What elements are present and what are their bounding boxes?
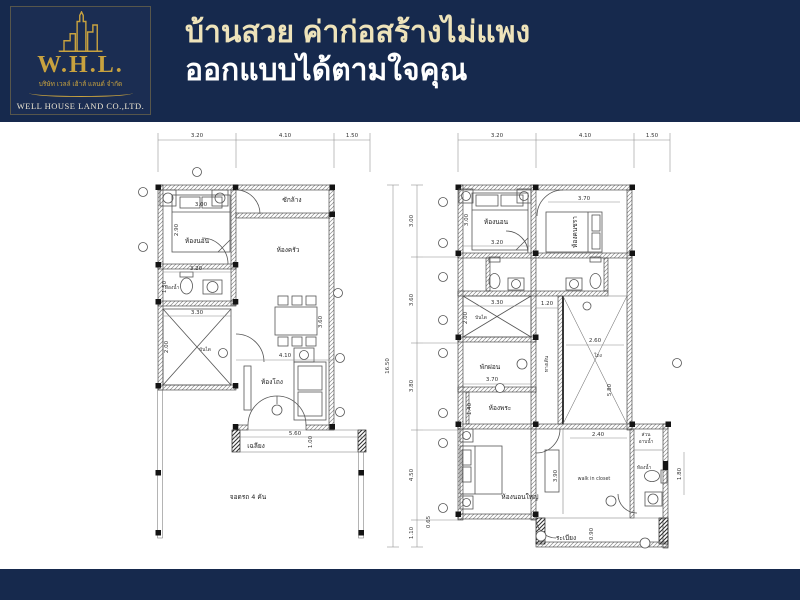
floor-plans-canvas: 3.20 4.10 1.50 bbox=[0, 122, 800, 569]
header-band: W.H.L. บริษัท เวลล์ เฮ้าส์ แลนด์ จำกัด W… bbox=[0, 0, 800, 122]
room-label-prayer: ห้องพระ bbox=[489, 404, 512, 412]
p2-dim: 3.80 bbox=[409, 379, 415, 392]
p2-dim: 2.40 bbox=[592, 432, 605, 438]
slide-headline: บ้านสวย ค่าก่อสร้างไม่แพง ออกแบบได้ตามใจ… bbox=[185, 14, 530, 90]
room-label-shower: อาบน้ำ bbox=[639, 437, 654, 445]
p2-dim: 2.00 bbox=[463, 311, 469, 324]
p2-dim: 1.20 bbox=[541, 301, 554, 307]
headline-line1: บ้านสวย ค่าก่อสร้างไม่แพง bbox=[185, 14, 530, 52]
p1-dim: 2.00 bbox=[164, 340, 170, 353]
room-label-hall: ห้องโถง bbox=[261, 378, 283, 386]
logo-company-name: WELL HOUSE LAND CO.,LTD. bbox=[17, 101, 145, 111]
room-label-bath2: ห้องน้ำ bbox=[637, 463, 652, 471]
p2-dim: 1.10 bbox=[409, 526, 415, 539]
room-label-elder-bedroom: ห้องคนชรา bbox=[571, 216, 579, 248]
p2-dim: 3.20 bbox=[491, 133, 504, 139]
p2-dim: 3.00 bbox=[409, 214, 415, 227]
p2-dim: 3.90 bbox=[553, 469, 559, 482]
p1-dim: 2.90 bbox=[174, 223, 180, 236]
room-label-relax: พักผ่อน bbox=[480, 363, 501, 371]
p1-dim: 1.50 bbox=[346, 133, 359, 139]
p2-top-dimension-line bbox=[458, 133, 670, 172]
p1-dim: 4.10 bbox=[279, 353, 292, 359]
room-label-master-bedroom: ห้องนอนใหญ่ bbox=[501, 493, 539, 501]
p2-dim: 4.10 bbox=[579, 133, 592, 139]
p2-dim: 0.65 bbox=[426, 515, 432, 528]
p1-dim: 4.10 bbox=[279, 133, 292, 139]
headline-line2: ออกแบบได้ตามใจคุณ bbox=[185, 52, 530, 90]
building-skyline-icon bbox=[57, 11, 104, 53]
p1-top-dimension-line bbox=[158, 133, 370, 172]
p2-dim: 1.50 bbox=[646, 133, 659, 139]
room-label-stairs2: บันได bbox=[475, 314, 487, 321]
second-floor-plan: 3.20 4.10 1.50 3.00 3.60 3.80 4.50 1.10 … bbox=[385, 133, 684, 548]
p2-dim: 3.00 bbox=[464, 213, 470, 226]
room-label-balcony: ระเบียง bbox=[556, 534, 576, 542]
room-label-carport: จอดรถ 4 คัน bbox=[230, 493, 267, 501]
p1-dim: 3.00 bbox=[195, 202, 208, 208]
logo-abbr: W.H.L. bbox=[37, 53, 123, 78]
logo-thai-name: บริษัท เวลล์ เฮ้าส์ แลนด์ จำกัด bbox=[39, 79, 123, 89]
p1-dim: 5.60 bbox=[289, 431, 302, 437]
room-label-terrace: เฉลียง bbox=[247, 442, 265, 450]
p1-dim: 3.60 bbox=[318, 315, 324, 328]
room-label-void: โถง bbox=[594, 352, 602, 359]
p2-dim: 1.40 bbox=[467, 402, 473, 415]
p2-dim: 0.90 bbox=[589, 527, 595, 540]
p2-dim: 4.50 bbox=[409, 468, 415, 481]
p2-dim: 1.80 bbox=[677, 467, 683, 480]
p1-dim: 3.30 bbox=[191, 310, 204, 316]
p1-dim: 1.50 bbox=[162, 280, 168, 293]
p1-dim: 1.00 bbox=[308, 435, 314, 448]
room-label-bedroom: ห้องนอน bbox=[185, 237, 210, 245]
p2-dim-total: 16.50 bbox=[385, 358, 391, 374]
room-label-laundry: ซักล้าง bbox=[282, 196, 301, 204]
first-floor-plan: 3.20 4.10 1.50 bbox=[139, 133, 371, 538]
footer-band bbox=[0, 569, 800, 600]
room-label-corridor: ทางเดิน bbox=[544, 355, 550, 372]
room-label-walk-in-closet: walk in closet bbox=[578, 476, 611, 482]
company-logo: W.H.L. บริษัท เวลล์ เฮ้าส์ แลนด์ จำกัด W… bbox=[10, 6, 151, 115]
p1-dim: 3.20 bbox=[190, 266, 203, 272]
p1-grid-bubbles bbox=[139, 168, 345, 417]
room-label-shower: ส่วน bbox=[642, 432, 652, 438]
p2-dim: 2.60 bbox=[589, 338, 602, 344]
p2-dim: 5.80 bbox=[607, 383, 613, 396]
p2-left-dimension-line bbox=[387, 185, 458, 547]
logo-divider bbox=[29, 89, 133, 97]
p2-dim: 3.30 bbox=[491, 300, 504, 306]
room-label-kitchen: ห้องครัว bbox=[277, 246, 300, 254]
room-label-stairs: บันได bbox=[199, 346, 211, 353]
p1-dim: 3.20 bbox=[191, 133, 204, 139]
p2-dim: 3.70 bbox=[578, 196, 591, 202]
p2-dim: 3.60 bbox=[409, 293, 415, 306]
room-label-bedroom2: ห้องนอน bbox=[484, 218, 509, 226]
p2-dim: 3.70 bbox=[486, 377, 499, 383]
p2-dim: 3.20 bbox=[491, 240, 504, 246]
